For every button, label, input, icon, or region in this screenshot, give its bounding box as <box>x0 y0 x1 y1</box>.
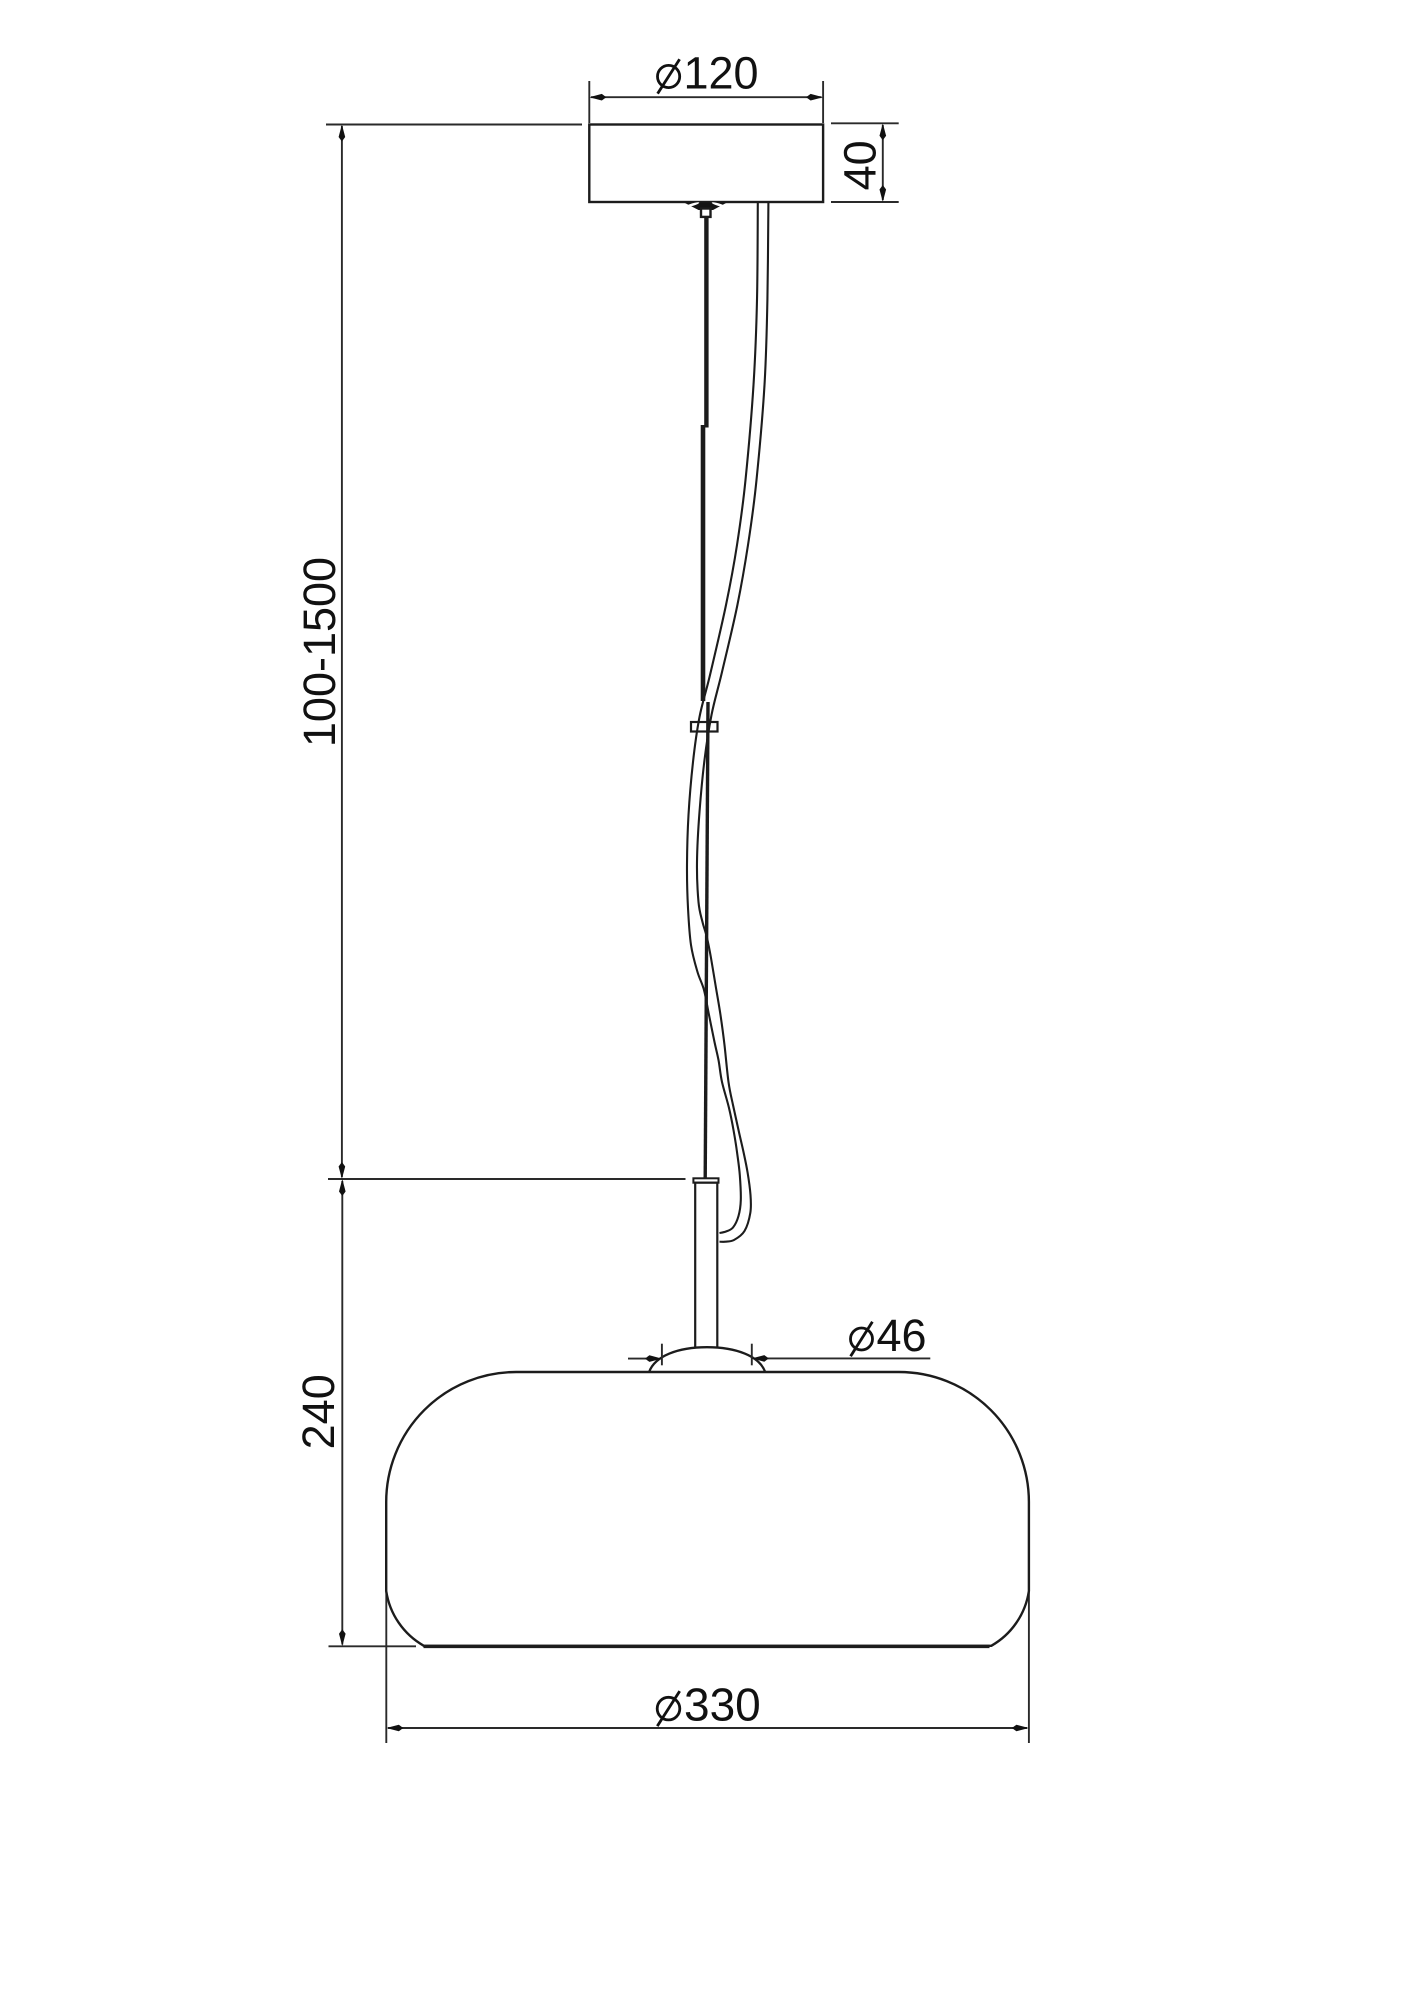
svg-text:40: 40 <box>834 140 885 190</box>
svg-text:120: 120 <box>684 47 759 98</box>
svg-text:46: 46 <box>877 1310 927 1361</box>
svg-text:330: 330 <box>684 1679 761 1731</box>
svg-text:100-1500: 100-1500 <box>294 557 345 747</box>
svg-text:240: 240 <box>293 1374 344 1449</box>
